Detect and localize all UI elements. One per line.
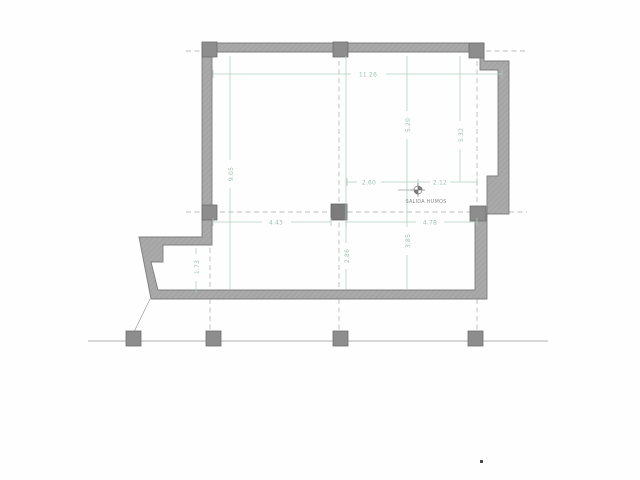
dim-label-lower-right-width: 4.78 <box>423 220 437 227</box>
column-top-center <box>333 42 348 57</box>
dim-label-overall-width: 11.26 <box>359 72 377 79</box>
column-top-right <box>469 43 484 58</box>
dim-label-lower-center-height: 2.86 <box>344 249 351 263</box>
dimension-reference-lines <box>196 56 460 292</box>
smoke-outlet-crosshair-icon <box>411 183 425 197</box>
column-mid-right <box>470 206 486 221</box>
footing-column-1 <box>126 331 141 346</box>
smoke-outlet-label: SALIDA HUMOS <box>406 199 447 205</box>
vertical-dimension-labels: 9.05 5.20 5.32 3.85 2.86 1.73 <box>194 118 465 274</box>
dimension-smoke-outlet: 2.60 2.12 <box>347 178 477 187</box>
footing-connector-line <box>134 299 150 332</box>
dim-label-lower-left-width: 4.43 <box>269 220 283 227</box>
structural-axes <box>186 44 527 349</box>
floor-plan-svg: 11.26 2.60 2.12 4.43 4.78 9.05 5.20 5.32… <box>0 0 640 480</box>
column-mid-center <box>331 204 347 220</box>
dim-label-smoke-left: 2.60 <box>362 180 376 187</box>
dim-label-upper-right-height: 5.20 <box>405 118 412 132</box>
floor-plan-canvas: 11.26 2.60 2.12 4.43 4.78 9.05 5.20 5.32… <box>0 0 640 480</box>
dimension-overall-width: 11.26 <box>213 70 502 79</box>
dim-label-left-height: 9.05 <box>228 167 235 181</box>
footing-column-4 <box>468 331 483 346</box>
dim-label-lower-left-height: 1.73 <box>194 260 201 274</box>
page-marker-dot <box>480 460 483 463</box>
footing-column-2 <box>206 331 221 346</box>
footing-column-3 <box>333 331 348 346</box>
dim-label-right-edge-height: 5.32 <box>458 128 465 142</box>
dim-label-smoke-right: 2.12 <box>433 180 447 187</box>
ground-and-footings <box>88 299 548 346</box>
column-top-left <box>202 42 217 57</box>
dim-label-lower-right-height: 3.85 <box>405 234 412 248</box>
wall-columns <box>202 42 486 221</box>
column-mid-left <box>202 205 217 220</box>
